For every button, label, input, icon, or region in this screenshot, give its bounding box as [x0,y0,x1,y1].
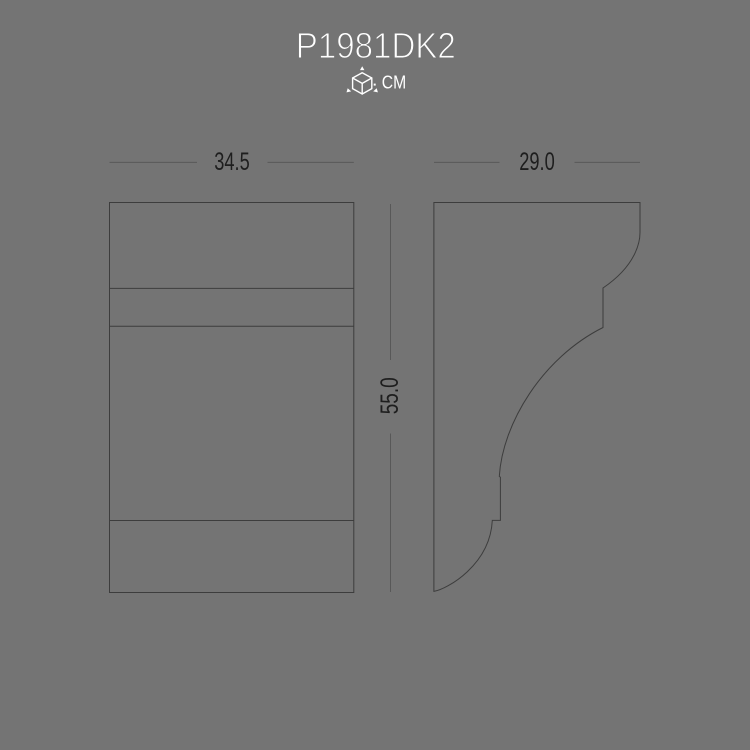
svg-text:55.0: 55.0 [376,377,404,414]
svg-text:29.0: 29.0 [519,148,555,176]
svg-text:34.5: 34.5 [214,148,250,176]
svg-text:P1981DK2: P1981DK2 [296,25,456,66]
svg-text:CM: CM [382,72,406,92]
